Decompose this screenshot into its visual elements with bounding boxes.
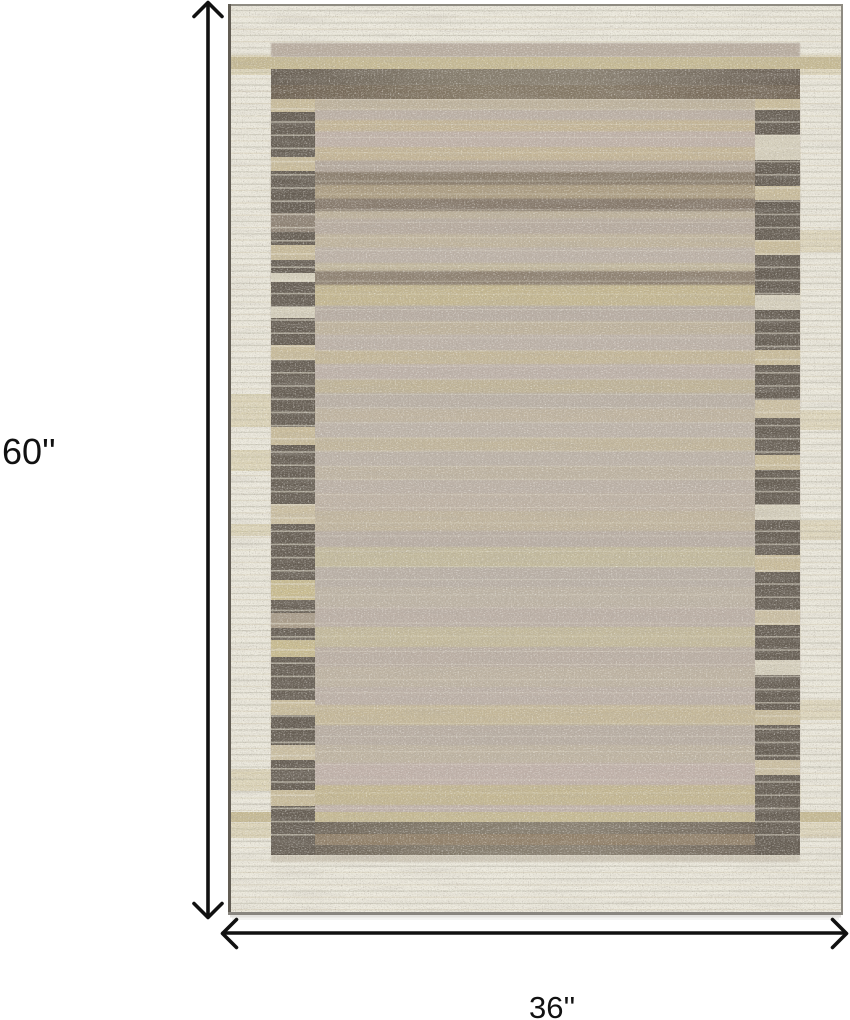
svg-text:60'': 60'' (2, 431, 56, 472)
svg-text:36'': 36'' (529, 990, 575, 1020)
